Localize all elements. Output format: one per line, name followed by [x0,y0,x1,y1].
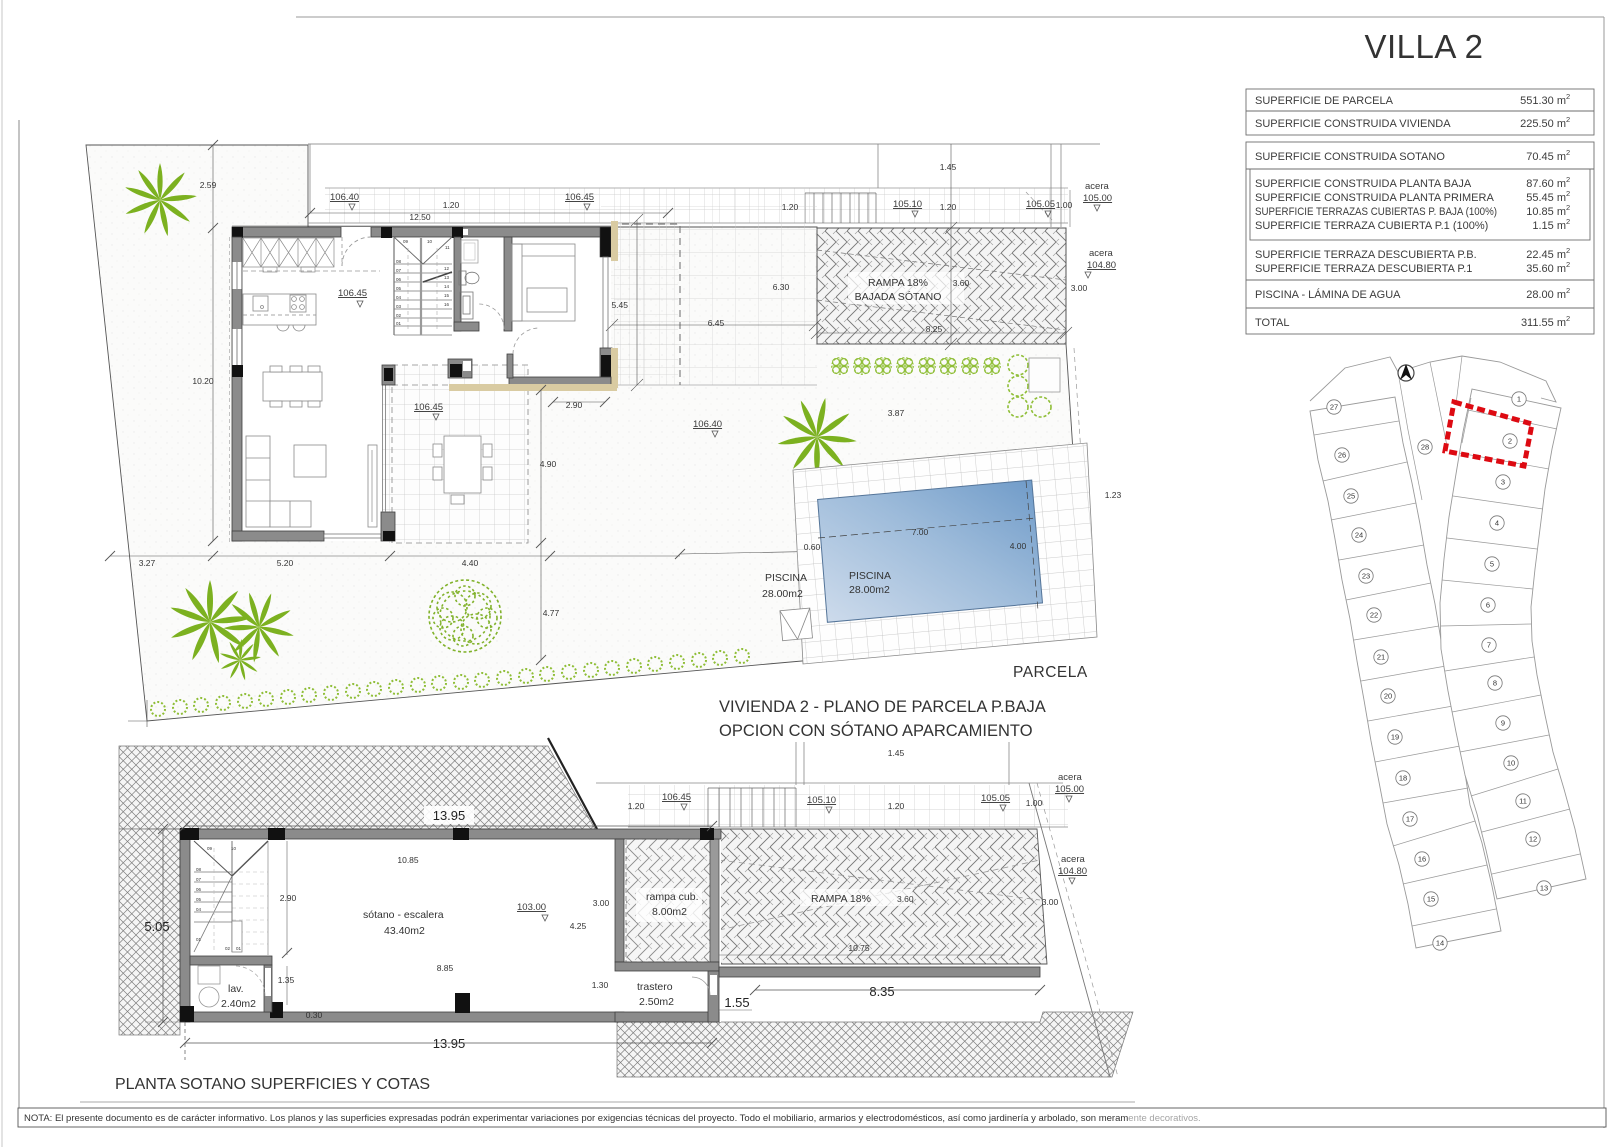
svg-text:105.10: 105.10 [807,795,836,806]
svg-text:sótano - escalera: sótano - escalera [363,909,444,921]
svg-text:07: 07 [396,268,402,273]
svg-text:08: 08 [196,867,202,872]
svg-text:5.20: 5.20 [277,558,294,568]
svg-text:9: 9 [1501,719,1505,728]
svg-text:28.00 m: 28.00 m [1526,289,1566,301]
svg-text:1.15 m: 1.15 m [1532,220,1566,232]
svg-text:2.90: 2.90 [566,400,583,410]
svg-text:20: 20 [1384,692,1392,701]
svg-text:106.40: 106.40 [693,419,722,430]
svg-text:0.60: 0.60 [804,542,821,552]
svg-text:4.25: 4.25 [570,921,587,931]
svg-text:26: 26 [1338,451,1346,460]
svg-text:3.00: 3.00 [593,898,610,908]
svg-text:SUPERFICIE TERRAZA CUBIERTA P.: SUPERFICIE TERRAZA CUBIERTA P.1 (100%) [1255,220,1488,232]
svg-text:2: 2 [1566,286,1570,295]
svg-text:2: 2 [1566,92,1570,101]
svg-text:SUPERFICIE DE PARCELA: SUPERFICIE DE PARCELA [1255,95,1394,107]
svg-text:1.20: 1.20 [888,801,905,811]
svg-text:6: 6 [1486,601,1490,610]
svg-text:105.05: 105.05 [981,793,1010,804]
svg-text:105.00: 105.00 [1083,193,1112,204]
svg-text:1.23: 1.23 [1105,490,1122,500]
svg-text:10.75: 10.75 [848,943,870,953]
svg-text:10: 10 [231,846,237,851]
svg-text:105.00: 105.00 [1055,784,1084,795]
svg-text:01: 01 [196,937,202,942]
svg-text:1.30: 1.30 [592,980,609,990]
svg-text:3.27: 3.27 [139,558,156,568]
svg-text:104.80: 104.80 [1087,260,1116,271]
svg-text:43.40m2: 43.40m2 [384,925,425,937]
svg-text:SUPERFICIE TERRAZA DESCUBIERTA: SUPERFICIE TERRAZA DESCUBIERTA P.B. [1255,249,1477,261]
svg-text:3.00: 3.00 [1071,283,1088,293]
svg-text:13: 13 [1540,884,1548,893]
svg-text:28.00m2: 28.00m2 [762,588,803,600]
svg-text:2.59: 2.59 [200,180,217,190]
svg-text:SUPERFICIE CONSTRUIDA PLANTA B: SUPERFICIE CONSTRUIDA PLANTA BAJA [1255,178,1472,190]
svg-text:2: 2 [1566,246,1570,255]
svg-text:13.95: 13.95 [433,1036,466,1051]
svg-text:1.20: 1.20 [628,801,645,811]
svg-text:225.50 m: 225.50 m [1520,118,1566,130]
svg-text:01: 01 [236,946,242,951]
svg-text:35.60 m: 35.60 m [1526,263,1566,275]
svg-text:acera: acera [1058,772,1082,783]
svg-text:70.45 m: 70.45 m [1526,151,1566,163]
svg-text:2: 2 [1566,217,1570,226]
svg-text:rampa cub.: rampa cub. [646,891,699,903]
svg-text:11: 11 [1519,797,1527,806]
svg-text:1.00: 1.00 [1026,798,1043,808]
svg-text:05: 05 [396,286,402,291]
svg-text:1.45: 1.45 [888,748,905,758]
svg-text:106.45: 106.45 [662,792,691,803]
svg-text:02: 02 [396,313,402,318]
svg-text:1.00: 1.00 [1056,200,1073,210]
svg-text:RAMPA 18%: RAMPA 18% [811,893,871,905]
svg-text:1.45: 1.45 [940,162,957,172]
svg-text:18: 18 [1399,774,1407,783]
svg-text:10.85 m: 10.85 m [1526,206,1566,218]
svg-text:7: 7 [1487,641,1491,650]
svg-text:103.00: 103.00 [517,902,546,913]
svg-text:06: 06 [196,887,202,892]
svg-text:10.85: 10.85 [397,855,419,865]
svg-text:4.90: 4.90 [540,459,557,469]
svg-text:acera: acera [1089,248,1113,259]
svg-text:4.00: 4.00 [1010,541,1027,551]
svg-text:1.20: 1.20 [782,202,799,212]
svg-text:PARCELA: PARCELA [1013,664,1088,681]
svg-text:19: 19 [1391,733,1399,742]
svg-text:311.55 m: 311.55 m [1521,317,1566,329]
svg-text:2: 2 [1566,189,1570,198]
svg-text:13.95: 13.95 [433,808,466,823]
svg-text:2.90: 2.90 [280,893,297,903]
svg-text:5.05: 5.05 [144,919,169,934]
svg-text:1.35: 1.35 [278,975,295,985]
svg-text:SUPERFICIE CONSTRUIDA PLANTA P: SUPERFICIE CONSTRUIDA PLANTA PRIMERA [1255,192,1494,204]
svg-text:SUPERFICIE CONSTRUIDA SOTANO: SUPERFICIE CONSTRUIDA SOTANO [1255,151,1445,163]
svg-text:09: 09 [403,239,409,244]
svg-text:3.00: 3.00 [1042,897,1059,907]
svg-text:1.55: 1.55 [724,995,749,1010]
svg-text:104.80: 104.80 [1058,866,1087,877]
svg-text:BAJADA SÓTANO: BAJADA SÓTANO [855,290,942,303]
svg-text:2: 2 [1566,175,1570,184]
svg-text:22.45 m: 22.45 m [1526,249,1566,261]
svg-text:14: 14 [1436,939,1444,948]
svg-text:12: 12 [1529,835,1537,844]
svg-text:3: 3 [1501,478,1505,487]
svg-text:551.30 m: 551.30 m [1520,95,1566,107]
svg-text:105.05: 105.05 [1026,199,1055,210]
svg-text:02: 02 [225,946,231,951]
svg-text:2: 2 [1566,203,1570,212]
svg-text:3.60: 3.60 [897,894,914,904]
svg-text:10: 10 [427,239,433,244]
svg-text:SUPERFICIE TERRAZA DESCUBIERTA: SUPERFICIE TERRAZA DESCUBIERTA P.1 [1255,263,1472,275]
svg-text:6.30: 6.30 [773,282,790,292]
svg-text:15: 15 [1427,895,1435,904]
svg-text:3.87: 3.87 [888,408,905,418]
svg-text:01: 01 [396,321,402,326]
svg-text:106.40: 106.40 [330,192,359,203]
svg-text:106.45: 106.45 [414,402,443,413]
svg-text:trastero: trastero [637,981,673,993]
svg-text:55.45 m: 55.45 m [1526,192,1566,204]
svg-text:105.10: 105.10 [893,199,922,210]
svg-text:lav.: lav. [228,983,244,995]
svg-text:28: 28 [1421,443,1429,452]
svg-text:4.40: 4.40 [462,558,479,568]
svg-text:05: 05 [196,897,202,902]
svg-text:5.45: 5.45 [611,300,628,310]
svg-text:28.00m2: 28.00m2 [849,584,890,596]
svg-text:3.60: 3.60 [953,278,970,288]
svg-text:25: 25 [1347,492,1355,501]
svg-text:03: 03 [396,304,402,309]
svg-text:04: 04 [396,295,402,300]
svg-text:12.50: 12.50 [409,212,431,222]
svg-text:NOTA: El presente documento es: NOTA: El presente documento es de caráct… [24,1113,1201,1124]
svg-text:2.40m2: 2.40m2 [221,998,256,1010]
svg-text:1: 1 [1517,395,1521,404]
svg-text:12: 12 [444,266,450,271]
svg-text:8.85: 8.85 [437,963,454,973]
svg-text:2: 2 [1566,260,1570,269]
svg-text:17: 17 [1406,815,1414,824]
svg-text:VIVIENDA 2 - PLANO DE PARCELA: VIVIENDA 2 - PLANO DE PARCELA P.BAJA [719,698,1046,716]
svg-text:06: 06 [396,277,402,282]
svg-text:27: 27 [1330,403,1338,412]
svg-text:22: 22 [1370,611,1378,620]
svg-text:23: 23 [1362,572,1370,581]
svg-text:2: 2 [1566,314,1570,323]
svg-text:07: 07 [196,877,202,882]
svg-text:2: 2 [1566,148,1570,157]
svg-text:08: 08 [396,259,402,264]
svg-text:OPCION CON SÓTANO APARCAMIENTO: OPCION CON SÓTANO APARCAMIENTO [719,721,1033,740]
svg-text:PISCINA - LÁMINA DE AGUA: PISCINA - LÁMINA DE AGUA [1255,288,1401,301]
svg-text:24: 24 [1355,531,1363,540]
svg-text:15: 15 [444,293,450,298]
svg-text:11: 11 [445,245,450,250]
svg-text:1.20: 1.20 [443,200,460,210]
svg-text:4.77: 4.77 [543,608,560,618]
svg-text:16: 16 [444,302,450,307]
svg-text:TOTAL: TOTAL [1255,317,1289,329]
svg-text:106.45: 106.45 [338,288,367,299]
svg-text:10.20: 10.20 [192,376,214,386]
svg-text:21: 21 [1377,653,1385,662]
svg-text:2: 2 [1566,115,1570,124]
svg-text:0.30: 0.30 [306,1010,323,1020]
svg-text:14: 14 [444,284,450,289]
svg-text:8.25: 8.25 [926,324,943,334]
svg-text:106.45: 106.45 [565,192,594,203]
svg-text:1.20: 1.20 [940,202,957,212]
svg-text:13: 13 [444,275,450,280]
svg-text:09: 09 [207,846,213,851]
svg-text:04: 04 [196,907,202,912]
svg-text:PLANTA SOTANO SUPERFICIES Y CO: PLANTA SOTANO SUPERFICIES Y COTAS [115,1076,430,1093]
svg-text:PISCINA: PISCINA [765,572,807,584]
svg-text:8: 8 [1493,679,1497,688]
svg-text:SUPERFICIE CONSTRUIDA VIVIENDA: SUPERFICIE CONSTRUIDA VIVIENDA [1255,118,1451,130]
svg-text:4: 4 [1495,519,1499,528]
svg-text:8.00m2: 8.00m2 [652,906,687,918]
svg-text:5: 5 [1490,560,1494,569]
svg-text:2: 2 [1508,437,1512,446]
svg-text:PISCINA: PISCINA [849,570,891,582]
svg-text:RAMPA 18%: RAMPA 18% [868,277,928,289]
svg-text:SUPERFICIE TERRAZAS CUBIERTAS: SUPERFICIE TERRAZAS CUBIERTAS P. BAJA (1… [1255,206,1497,218]
svg-text:acera: acera [1085,181,1109,192]
svg-text:10: 10 [1507,759,1515,768]
svg-text:87.60 m: 87.60 m [1526,178,1566,190]
svg-text:acera: acera [1061,854,1085,865]
svg-text:16: 16 [1418,855,1426,864]
svg-text:VILLA 2: VILLA 2 [1364,28,1483,65]
svg-text:8.35: 8.35 [869,984,894,999]
svg-text:2.50m2: 2.50m2 [639,996,674,1008]
svg-text:6.45: 6.45 [708,318,725,328]
svg-text:7.00: 7.00 [912,527,929,537]
